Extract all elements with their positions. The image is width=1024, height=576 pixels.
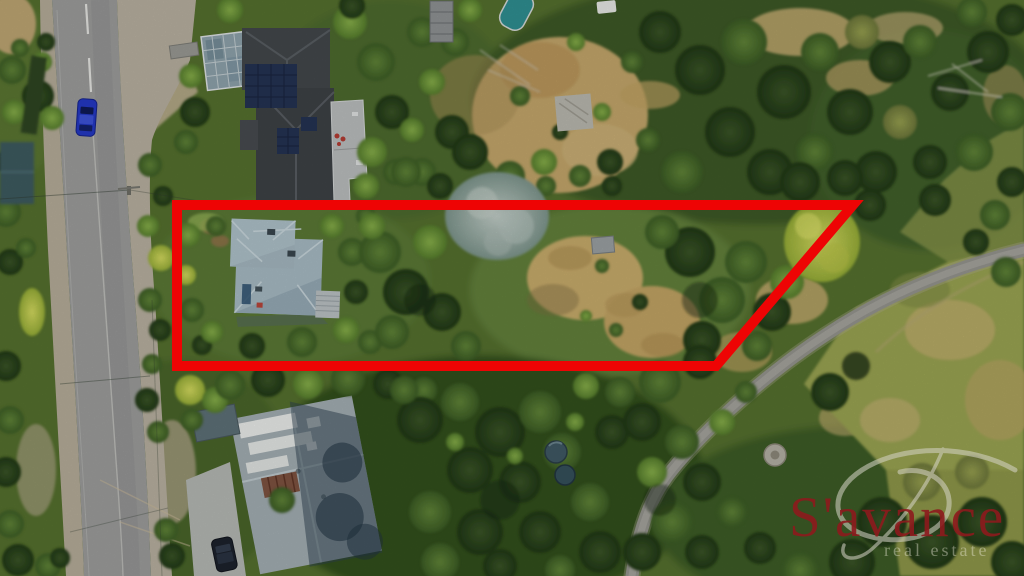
aerial-photo-canvas: S'avance real estate bbox=[0, 0, 1024, 576]
watermark-tagline-text: real estate bbox=[884, 540, 989, 560]
aerial-photo: S'avance real estate bbox=[0, 0, 1024, 576]
